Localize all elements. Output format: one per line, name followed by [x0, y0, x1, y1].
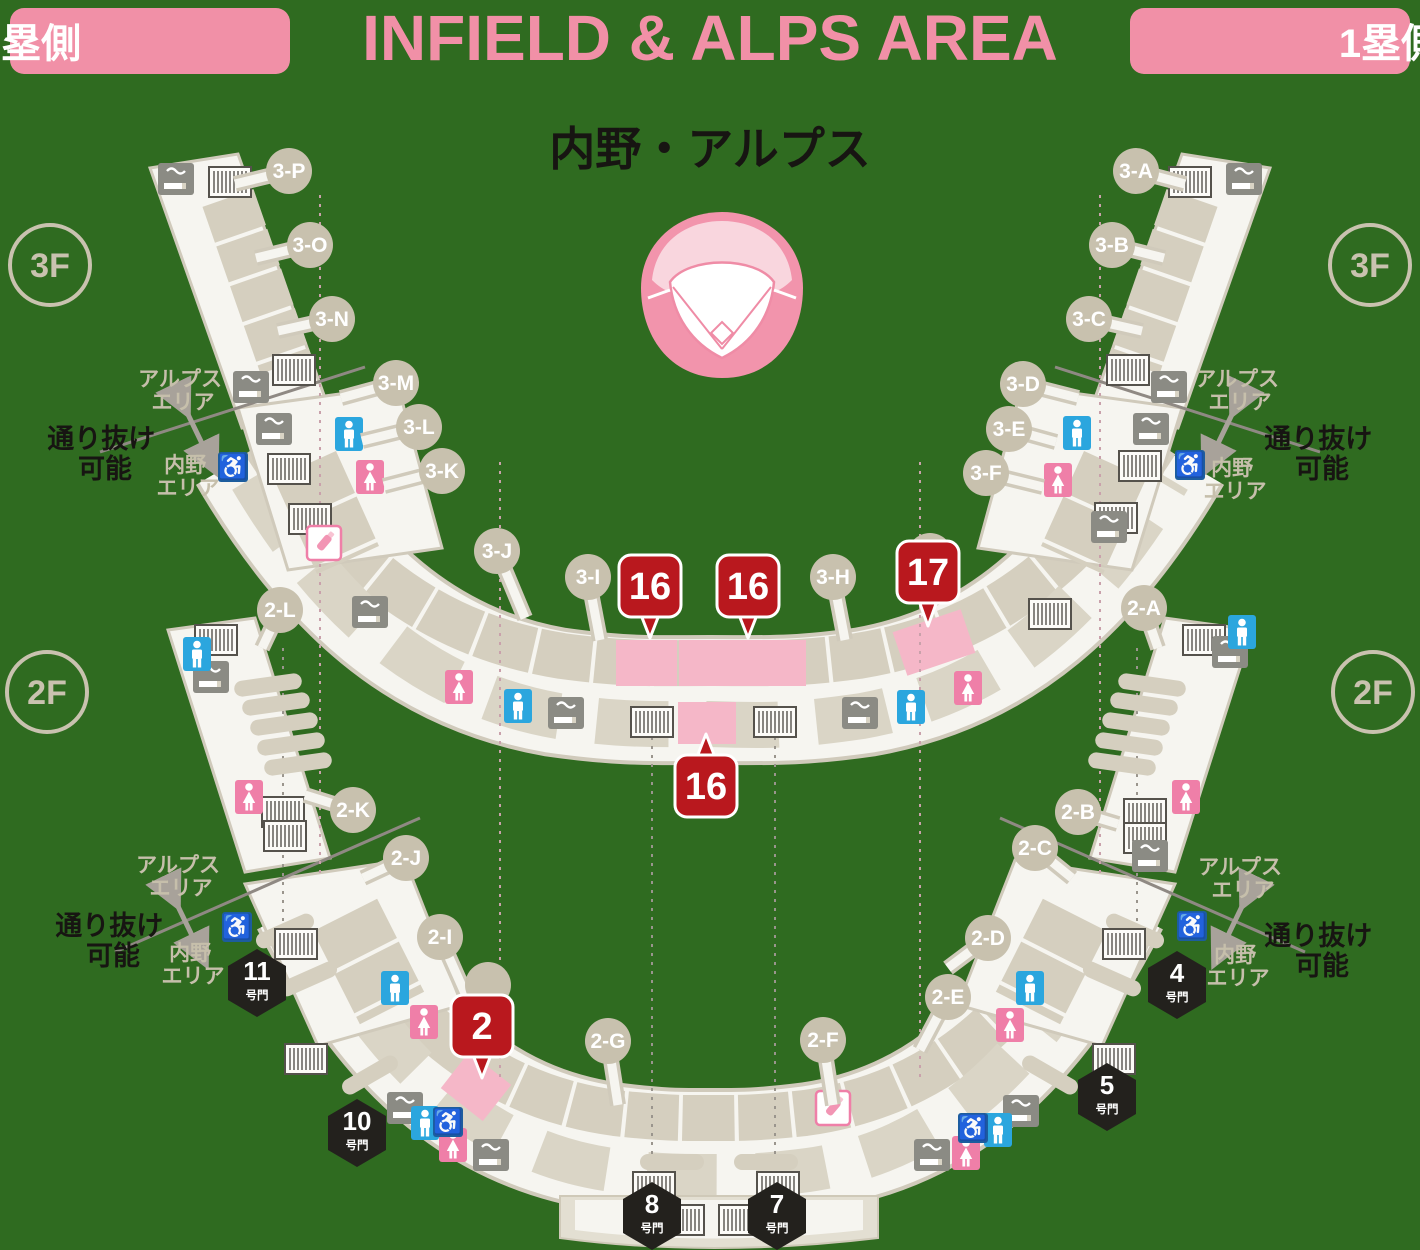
ramp-pill [734, 1154, 798, 1170]
area-note: アルプス エリア [138, 368, 228, 414]
svg-text:2F: 2F [27, 674, 67, 712]
svg-text:2-K: 2-K [336, 799, 370, 822]
escalator-icon [264, 821, 306, 851]
svg-text:10: 10 [343, 1106, 372, 1136]
svg-text:2-F: 2-F [807, 1029, 839, 1052]
escalator-icon [1119, 451, 1161, 481]
area-note: 内野 エリア [1204, 456, 1267, 503]
smoking-area-icon [1133, 413, 1169, 445]
svg-text:2: 2 [471, 1006, 492, 1048]
escalator-icon [285, 1044, 327, 1074]
womens-toilet-icon [410, 1005, 438, 1039]
svg-text:3-O: 3-O [292, 234, 327, 257]
svg-text:7: 7 [770, 1189, 784, 1219]
smoking-area-icon [158, 163, 194, 195]
svg-text:号門: 号門 [246, 989, 269, 1002]
area-note: 内野 エリア [1207, 943, 1270, 990]
escalator-icon [275, 929, 317, 959]
page-title: INFIELD & ALPS AREA [362, 2, 1058, 74]
svg-text:号門: 号門 [766, 1222, 789, 1235]
svg-text:♿: ♿ [1175, 451, 1205, 479]
svg-text:3-C: 3-C [1072, 308, 1106, 331]
svg-text:号門: 号門 [1166, 991, 1189, 1004]
smoking-area-icon [256, 413, 292, 445]
svg-text:3-N: 3-N [315, 308, 349, 331]
svg-text:3-K: 3-K [425, 460, 459, 483]
stadium-map: 3塁側 1塁側 INFIELD & ALPS AREA 内野・アルプス [0, 0, 1420, 1250]
wheelchair-icon: ♿ [433, 1107, 463, 1137]
wheelchair-icon: ♿ [958, 1113, 988, 1143]
smoking-area-icon [548, 697, 584, 729]
svg-text:♿: ♿ [1177, 912, 1207, 940]
svg-text:3-P: 3-P [273, 160, 306, 183]
svg-text:3F: 3F [1350, 247, 1390, 285]
area-note: アルプス エリア [1195, 368, 1285, 414]
svg-text:2-A: 2-A [1127, 597, 1161, 620]
smoking-area-icon [352, 596, 388, 628]
wheelchair-icon: ♿ [1175, 450, 1205, 480]
svg-text:5: 5 [1100, 1070, 1114, 1100]
svg-text:2-D: 2-D [971, 927, 1005, 950]
womens-toilet-icon [445, 670, 473, 704]
ramp-pill [640, 1154, 704, 1170]
escalator-icon [268, 454, 310, 484]
escalator-icon [1029, 599, 1071, 629]
escalator-icon [273, 355, 315, 385]
escalator-icon [1103, 929, 1145, 959]
highlight-section-2 [455, 1070, 497, 1103]
svg-text:2-G: 2-G [590, 1030, 625, 1053]
womens-toilet-icon [954, 671, 982, 705]
wheelchair-icon: ♿ [218, 452, 248, 482]
svg-text:号門: 号門 [641, 1222, 664, 1235]
area-note: 内野 エリア [157, 453, 220, 500]
svg-text:2F: 2F [1353, 674, 1393, 712]
highlight-section-17 [900, 631, 968, 654]
mens-toilet-icon [984, 1113, 1012, 1147]
svg-text:3-B: 3-B [1095, 234, 1129, 257]
area-note: アルプス エリア [136, 854, 226, 900]
svg-text:3-H: 3-H [816, 566, 850, 589]
svg-text:♿: ♿ [958, 1114, 988, 1142]
svg-text:3-A: 3-A [1119, 160, 1153, 183]
smoking-area-icon [914, 1139, 950, 1171]
svg-text:2-B: 2-B [1061, 801, 1095, 824]
mens-toilet-icon [897, 690, 925, 724]
smoking-area-icon [1226, 163, 1262, 195]
svg-text:16: 16 [727, 566, 769, 608]
smoking-area-icon [473, 1139, 509, 1171]
escalator-icon [754, 707, 796, 737]
svg-text:♿: ♿ [222, 913, 252, 941]
womens-toilet-icon [1044, 463, 1072, 497]
mens-toilet-icon [1228, 615, 1256, 649]
mens-toilet-icon [504, 689, 532, 723]
womens-toilet-icon [235, 780, 263, 814]
bottle-icon [307, 526, 341, 560]
smoking-area-icon [1132, 840, 1168, 872]
svg-text:4: 4 [1170, 958, 1185, 988]
svg-text:3F: 3F [30, 247, 70, 285]
svg-text:2-E: 2-E [932, 986, 965, 1009]
womens-toilet-icon [356, 460, 384, 494]
stadium-icon [641, 212, 803, 378]
area-note: アルプス エリア [1198, 856, 1288, 902]
svg-text:3-I: 3-I [576, 566, 601, 589]
mens-toilet-icon [1063, 416, 1091, 450]
womens-toilet-icon [1172, 780, 1200, 814]
svg-text:16: 16 [685, 766, 727, 808]
wheelchair-icon: ♿ [222, 912, 252, 942]
svg-text:2-L: 2-L [264, 599, 296, 622]
area-note: 内野 エリア [162, 941, 225, 988]
third-base-side-label: 3塁側 [0, 22, 81, 66]
svg-text:3-L: 3-L [403, 416, 435, 439]
svg-text:3-J: 3-J [482, 540, 512, 563]
svg-text:16: 16 [629, 566, 671, 608]
svg-text:号門: 号門 [1096, 1103, 1119, 1116]
svg-text:号門: 号門 [346, 1139, 369, 1152]
svg-text:3-F: 3-F [970, 462, 1002, 485]
svg-text:3-M: 3-M [378, 372, 414, 395]
svg-text:17: 17 [907, 552, 949, 594]
stadium-map-page: 3塁側 1塁側 INFIELD & ALPS AREA 内野・アルプス [0, 0, 1420, 1250]
svg-text:2-I: 2-I [428, 926, 453, 949]
svg-text:11: 11 [243, 956, 271, 986]
smoking-area-icon [842, 697, 878, 729]
smoking-area-icon [1091, 511, 1127, 543]
mens-toilet-icon [335, 417, 363, 451]
svg-text:8: 8 [645, 1189, 659, 1219]
wheelchair-icon: ♿ [1177, 911, 1207, 941]
mens-toilet-icon [183, 637, 211, 671]
womens-toilet-icon [996, 1008, 1024, 1042]
svg-text:2-J: 2-J [391, 847, 421, 870]
svg-text:♿: ♿ [433, 1108, 463, 1136]
smoking-area-icon [1151, 371, 1187, 403]
smoking-area-icon [233, 371, 269, 403]
svg-text:♿: ♿ [218, 453, 248, 481]
mens-toilet-icon [1016, 971, 1044, 1005]
mens-toilet-icon [381, 971, 409, 1005]
svg-text:2-C: 2-C [1018, 837, 1052, 860]
escalator-icon [631, 707, 673, 737]
svg-text:3-E: 3-E [993, 418, 1026, 441]
page-subtitle: 内野・アルプス [549, 123, 871, 175]
svg-text:3-D: 3-D [1006, 373, 1040, 396]
escalator-icon [1107, 355, 1149, 385]
first-base-side-label: 1塁側 [1339, 22, 1420, 66]
